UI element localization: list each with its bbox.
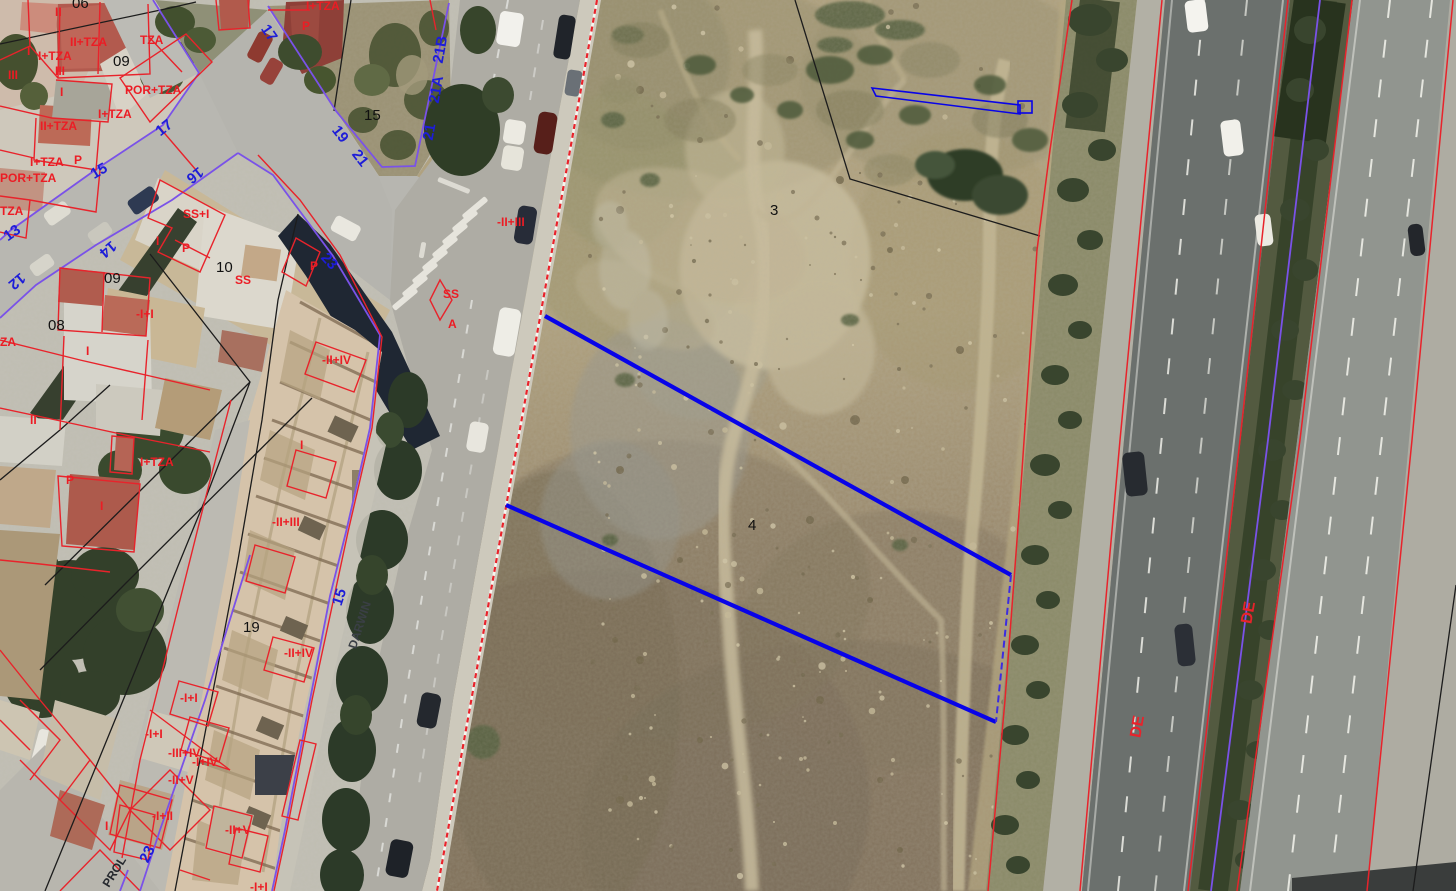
svg-text:II: II <box>30 413 37 427</box>
svg-text:06: 06 <box>72 0 89 12</box>
svg-text:I: I <box>27 44 30 58</box>
svg-text:-II+III: -II+III <box>497 215 525 229</box>
svg-text:I: I <box>86 344 89 358</box>
svg-text:III: III <box>8 68 18 82</box>
svg-text:SS: SS <box>235 273 251 287</box>
svg-text:-II+V: -II+V <box>225 823 251 837</box>
svg-text:3: 3 <box>770 202 778 219</box>
svg-text:P: P <box>310 259 318 273</box>
svg-text:-II+IV: -II+IV <box>284 646 313 660</box>
svg-text:I: I <box>105 819 108 833</box>
svg-text:I+TZA: I+TZA <box>38 49 72 63</box>
svg-text:TZA: TZA <box>140 33 164 47</box>
svg-text:I: I <box>100 499 103 513</box>
svg-text:I: I <box>300 438 303 452</box>
svg-text:P: P <box>66 473 74 487</box>
svg-text:SS+I: SS+I <box>183 207 209 221</box>
svg-text:I+TZA: I+TZA <box>30 155 64 169</box>
svg-text:4: 4 <box>748 517 756 534</box>
svg-text:-I+II: -I+II <box>152 809 173 823</box>
svg-text:II: II <box>55 5 62 19</box>
svg-text:II+TZA: II+TZA <box>40 119 77 133</box>
svg-text:-II+IV: -II+IV <box>322 353 351 367</box>
svg-text:09: 09 <box>113 53 130 70</box>
svg-text:10: 10 <box>216 259 233 276</box>
svg-text:-I+I: -I+I <box>136 307 154 321</box>
svg-text:I: I <box>156 234 159 248</box>
svg-text:I+TZA: I+TZA <box>306 0 340 13</box>
svg-text:P: P <box>302 19 310 33</box>
svg-text:08: 08 <box>48 317 65 334</box>
svg-text:P: P <box>182 241 190 255</box>
svg-text:I: I <box>60 85 63 99</box>
svg-text:-I+I: -I+I <box>250 880 268 891</box>
svg-text:I+TZA: I+TZA <box>98 107 132 121</box>
svg-text:III: III <box>55 64 65 78</box>
svg-text:A: A <box>448 317 457 331</box>
svg-text:09: 09 <box>104 270 121 287</box>
svg-text:POR+TZA: POR+TZA <box>0 171 57 185</box>
svg-text:TZA: TZA <box>0 204 24 218</box>
svg-text:15: 15 <box>364 107 381 124</box>
svg-text:POR+TZA: POR+TZA <box>125 83 182 97</box>
svg-text:21: 21 <box>420 122 440 141</box>
svg-text:I+TZA: I+TZA <box>140 455 174 469</box>
svg-text:-II+III: -II+III <box>272 515 300 529</box>
svg-text:SS: SS <box>443 287 459 301</box>
svg-text:-I+IV: -I+IV <box>192 755 218 769</box>
svg-text:II+TZA: II+TZA <box>70 35 107 49</box>
svg-text:-II+V: -II+V <box>168 773 194 787</box>
svg-text:P: P <box>74 153 82 167</box>
svg-text:19: 19 <box>243 619 260 636</box>
svg-text:-I+I: -I+I <box>145 727 163 741</box>
svg-text:ZA: ZA <box>0 335 16 349</box>
svg-text:-I+I: -I+I <box>180 691 198 705</box>
